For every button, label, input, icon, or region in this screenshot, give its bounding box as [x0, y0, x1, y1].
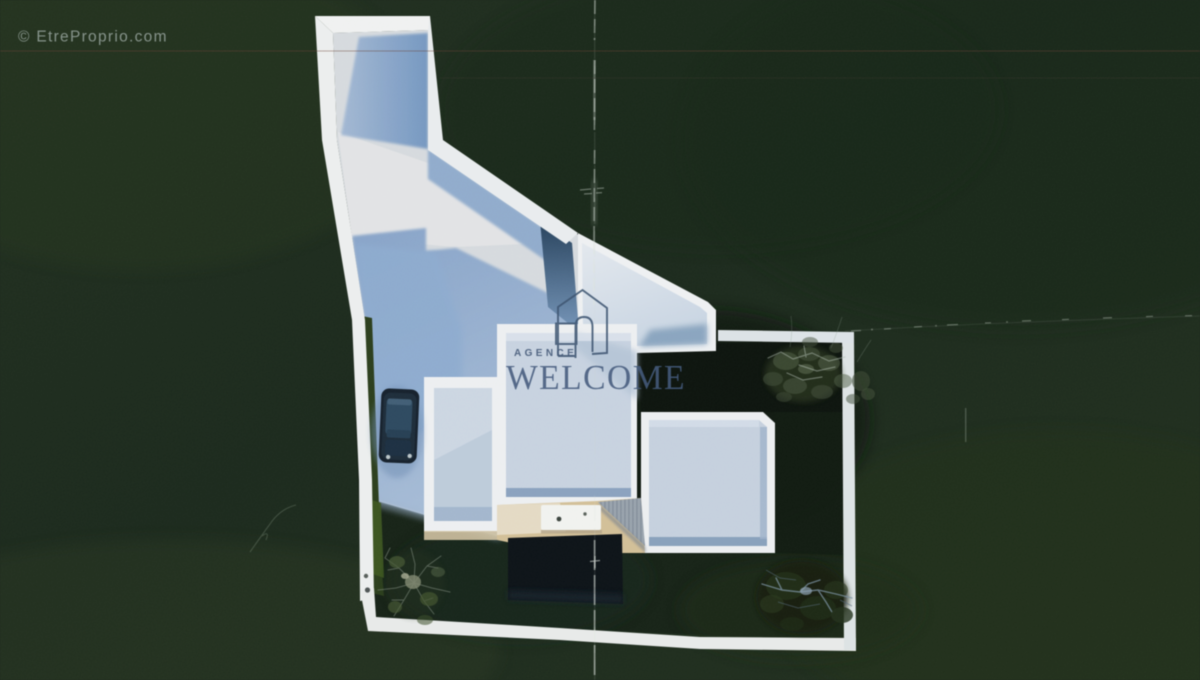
svg-text:© EtreProprio.com: © EtreProprio.com	[18, 29, 168, 46]
svg-text:WELCOME: WELCOME	[506, 358, 686, 397]
